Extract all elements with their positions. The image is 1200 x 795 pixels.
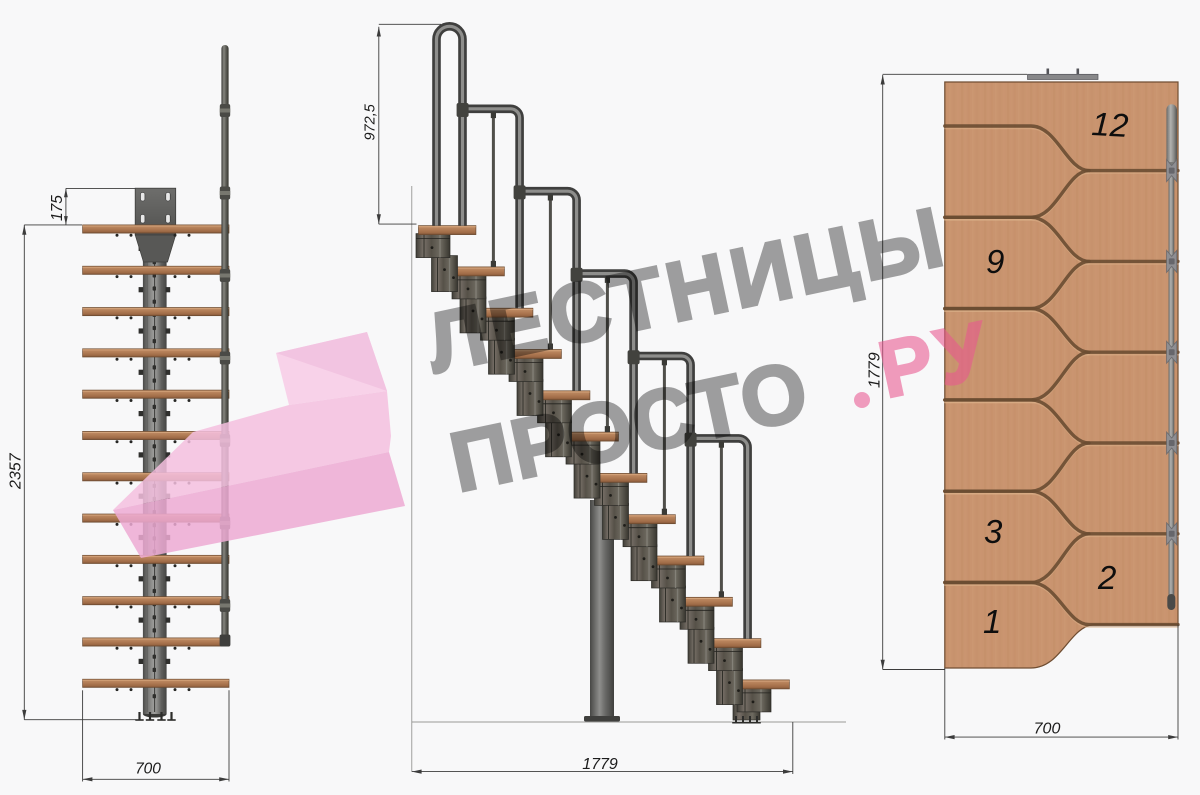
- svg-text:972,5: 972,5: [363, 103, 379, 140]
- svg-text:1: 1: [983, 603, 1001, 640]
- svg-text:2: 2: [1097, 559, 1116, 596]
- svg-text:175: 175: [49, 195, 66, 221]
- svg-text:2357: 2357: [8, 452, 25, 490]
- svg-text:700: 700: [135, 761, 161, 778]
- svg-text:3: 3: [984, 513, 1003, 550]
- svg-text:700: 700: [1034, 721, 1061, 738]
- svg-text:1779: 1779: [582, 756, 618, 773]
- svg-text:12: 12: [1091, 105, 1130, 144]
- svg-text:9: 9: [986, 243, 1004, 280]
